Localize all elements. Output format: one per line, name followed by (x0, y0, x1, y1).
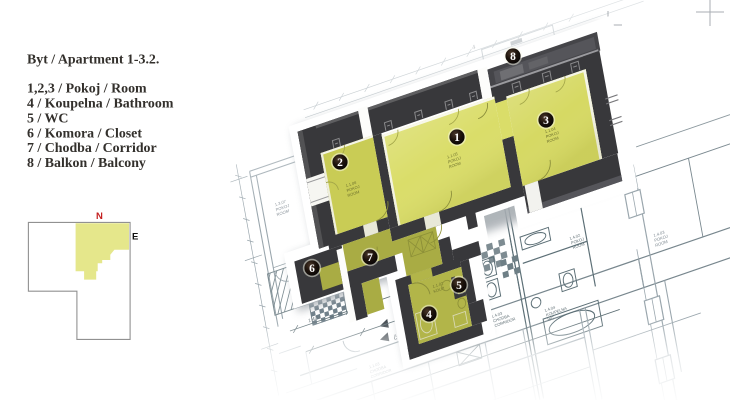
svg-text:5 / WC: 5 / WC (27, 111, 68, 126)
svg-text:5: 5 (456, 280, 462, 292)
svg-text:N: N (96, 211, 103, 222)
svg-text:E: E (132, 232, 138, 243)
svg-text:4 / Koupelna / Bathroom: 4 / Koupelna / Bathroom (27, 97, 174, 112)
svg-text:1,2,3 / Pokoj / Room: 1,2,3 / Pokoj / Room (27, 82, 147, 97)
svg-text:8: 8 (510, 51, 516, 63)
svg-text:6: 6 (309, 263, 315, 275)
svg-text:3: 3 (543, 115, 549, 127)
svg-text:8 / Balkon / Balcony: 8 / Balkon / Balcony (27, 156, 146, 171)
svg-text:1: 1 (454, 132, 460, 144)
svg-text:Byt / Apartment 1-3.2.: Byt / Apartment 1-3.2. (27, 53, 159, 68)
svg-text:7 / Chodba / Corridor: 7 / Chodba / Corridor (27, 141, 157, 156)
svg-text:2: 2 (337, 157, 343, 169)
svg-text:6 / Komora / Closet: 6 / Komora / Closet (27, 126, 142, 141)
svg-text:7: 7 (367, 252, 373, 264)
svg-text:4: 4 (426, 309, 432, 321)
